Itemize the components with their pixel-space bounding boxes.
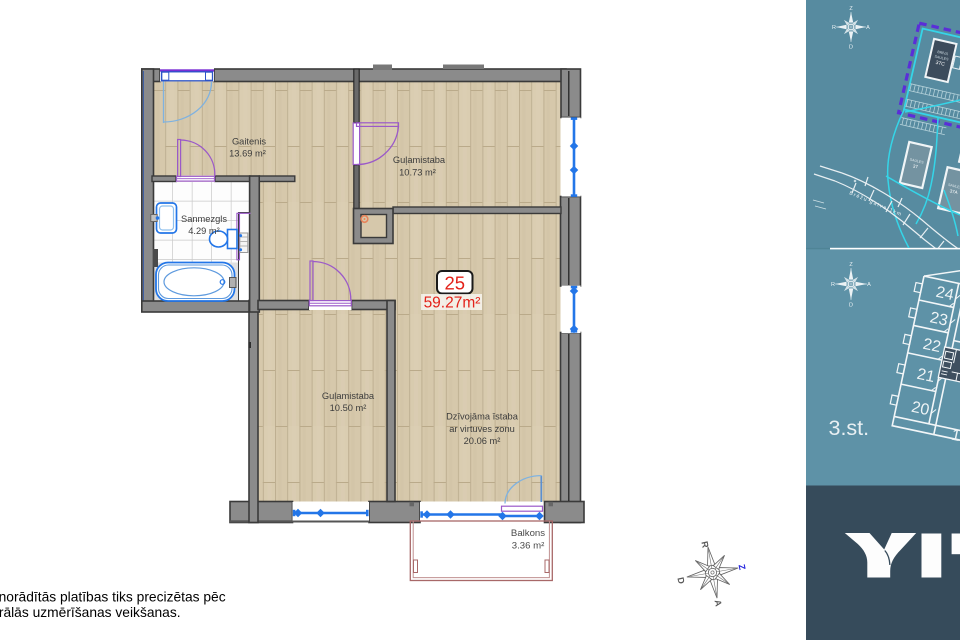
svg-text:R: R xyxy=(699,540,710,549)
svg-text:22: 22 xyxy=(921,336,942,356)
svg-text:23: 23 xyxy=(928,309,949,329)
svg-text:10.50 m²: 10.50 m² xyxy=(330,403,367,413)
svg-text:ar virtuves zonu: ar virtuves zonu xyxy=(449,424,515,434)
svg-text:A: A xyxy=(867,282,871,288)
svg-text:D: D xyxy=(849,303,853,309)
svg-text:20: 20 xyxy=(910,399,931,419)
svg-text:Z: Z xyxy=(737,563,748,571)
svg-text:kadastrālās uzmērīšanas veikša: kadastrālās uzmērīšanas veikšanas. xyxy=(0,605,181,620)
svg-text:R: R xyxy=(831,282,835,288)
svg-text:Gaitenis: Gaitenis xyxy=(232,136,266,146)
svg-text:25: 25 xyxy=(445,273,466,294)
svg-text:13.69 m²: 13.69 m² xyxy=(229,148,266,158)
svg-text:59.27m²: 59.27m² xyxy=(424,295,481,312)
svg-text:A: A xyxy=(713,599,724,608)
svg-text:Balkons: Balkons xyxy=(511,528,545,539)
svg-text:D: D xyxy=(675,576,686,585)
svg-text:24: 24 xyxy=(934,284,955,304)
svg-text:Guļamistaba: Guļamistaba xyxy=(322,391,375,401)
svg-text:Guļamistaba: Guļamistaba xyxy=(393,155,446,165)
svg-text:Plānā norādītās platības tiks: Plānā norādītās platības tiks precizētas… xyxy=(0,590,226,605)
svg-text:4.29 m²: 4.29 m² xyxy=(188,226,220,236)
svg-text:20.06 m²: 20.06 m² xyxy=(464,436,501,446)
svg-text:R: R xyxy=(832,25,836,31)
svg-text:Sanmezgls: Sanmezgls xyxy=(181,214,227,224)
svg-text:Dzīvojāma īstaba: Dzīvojāma īstaba xyxy=(446,412,519,422)
svg-text:21: 21 xyxy=(915,366,936,386)
svg-text:3.36 m²: 3.36 m² xyxy=(512,541,545,552)
svg-text:A: A xyxy=(866,25,870,31)
svg-text:3.st.: 3.st. xyxy=(829,416,870,440)
svg-text:10.73 m²: 10.73 m² xyxy=(399,168,436,178)
svg-text:D: D xyxy=(849,45,853,51)
